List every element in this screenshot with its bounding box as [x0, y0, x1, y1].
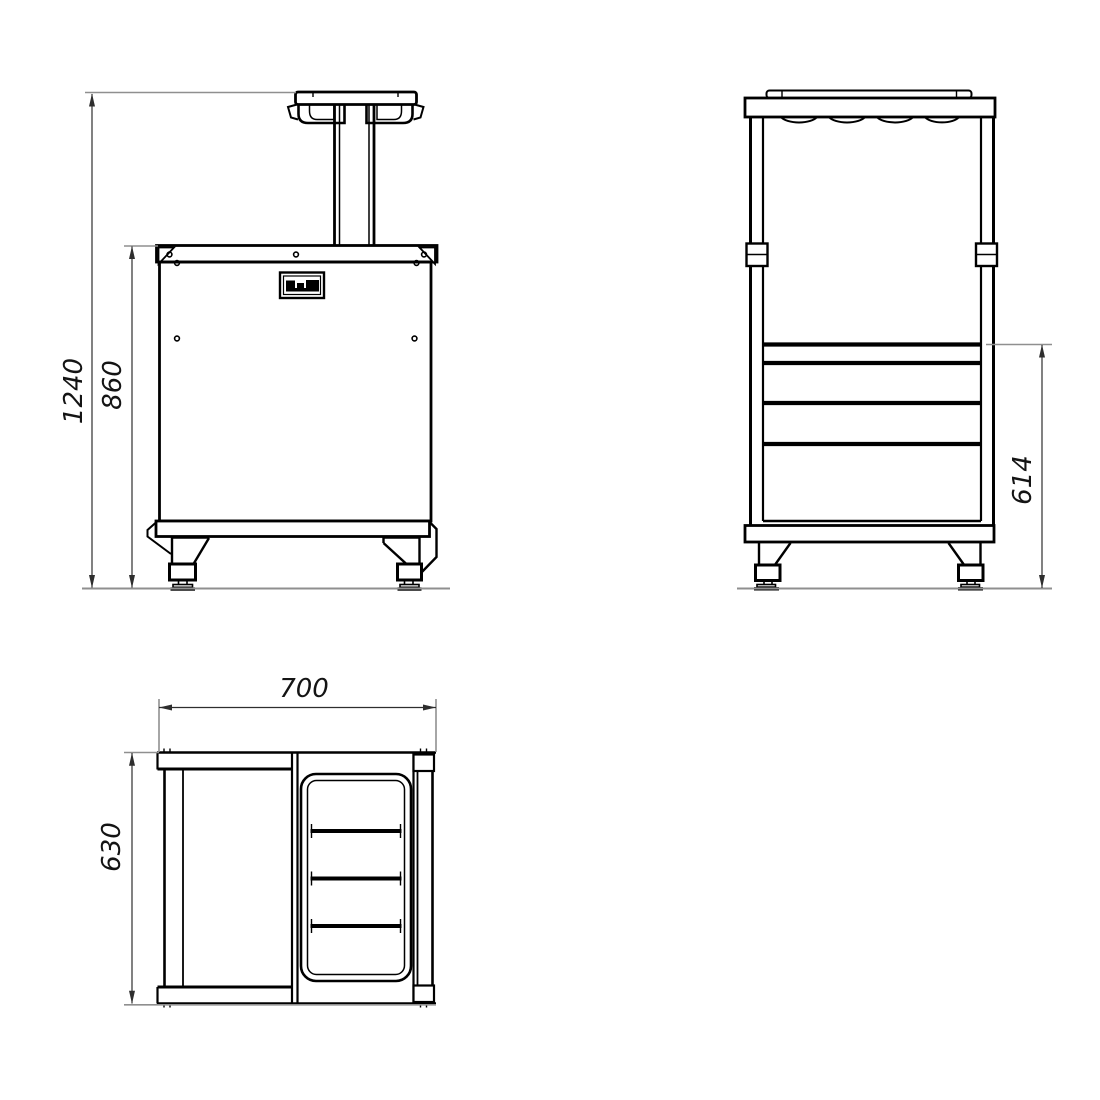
adjustable-foot-side-left	[754, 542, 791, 591]
arrowhead-up	[1039, 345, 1045, 358]
head-left-wing-inner	[310, 105, 335, 120]
side-view	[745, 91, 997, 591]
adjustable-foot-front-right	[384, 537, 422, 591]
screw-icon	[412, 336, 417, 341]
arrowhead-down	[1039, 575, 1045, 588]
base-side	[745, 526, 994, 591]
brand-logo-mark	[286, 288, 319, 292]
countertop-rail	[157, 246, 438, 263]
base-plinth	[156, 521, 430, 537]
dispenser-shelf-side	[745, 91, 995, 123]
arrowhead-down	[129, 991, 135, 1004]
foot-block	[398, 564, 422, 580]
head-right-flap	[414, 105, 424, 120]
foot-block	[756, 565, 781, 581]
three-view-drawing: 1240 860 614 700	[0, 0, 1100, 1100]
corner-block-bottom-right	[414, 986, 435, 1003]
leg-bracket-diagonal	[384, 543, 408, 565]
shelf-plate-side	[745, 98, 995, 117]
arrowhead-up	[129, 246, 135, 259]
arrowhead-left	[159, 705, 172, 711]
foot-block	[170, 564, 196, 580]
dimension-text-overall-depth: 630	[97, 822, 127, 872]
arrowhead-up	[89, 94, 95, 107]
cutlery-tray-well	[301, 774, 411, 981]
dispenser-head	[288, 92, 424, 123]
support-column	[335, 105, 375, 246]
foot-pad	[400, 585, 419, 588]
leg-bracket-diagonal	[775, 543, 791, 566]
cabinet-body-panel	[160, 262, 432, 521]
foot-pad	[961, 585, 980, 588]
frame-posts	[747, 117, 998, 526]
technical-drawing-canvas: 1240 860 614 700	[0, 0, 1100, 1100]
corner-block-top-right	[414, 755, 435, 772]
leg-bracket-diagonal	[949, 543, 965, 566]
dimension-rail-height: 614	[986, 345, 1052, 589]
head-right-wing-inner	[377, 105, 402, 120]
arrowhead-right	[423, 705, 436, 711]
adjustable-foot-front-left	[170, 537, 210, 591]
dimension-text-overall-width: 700	[279, 674, 329, 704]
dimension-text-cabinet-height: 860	[98, 360, 128, 410]
arrowhead-up	[129, 753, 135, 766]
screw-icon	[175, 336, 180, 341]
leg-bracket-diagonal	[194, 538, 210, 564]
cabinet-front	[148, 246, 438, 591]
foot-block	[959, 565, 984, 581]
front-view	[148, 92, 438, 591]
dimension-text-rail-height: 614	[1008, 455, 1038, 505]
dimension-overall-width: 700	[159, 674, 436, 752]
top-view	[157, 749, 436, 1008]
dimension-annotations: 1240 860 614 700	[59, 93, 1052, 1005]
arrowhead-down	[129, 575, 135, 588]
arrowhead-down	[89, 575, 95, 588]
brand-plate	[280, 273, 324, 299]
foot-pad	[757, 585, 776, 588]
base-plinth-side	[745, 526, 994, 543]
shelf-rails-side	[763, 345, 981, 522]
foot-pad	[173, 585, 193, 588]
head-left-flap	[288, 105, 298, 120]
adjustable-foot-side-right	[949, 542, 984, 591]
dimension-text-overall-height: 1240	[59, 358, 89, 424]
